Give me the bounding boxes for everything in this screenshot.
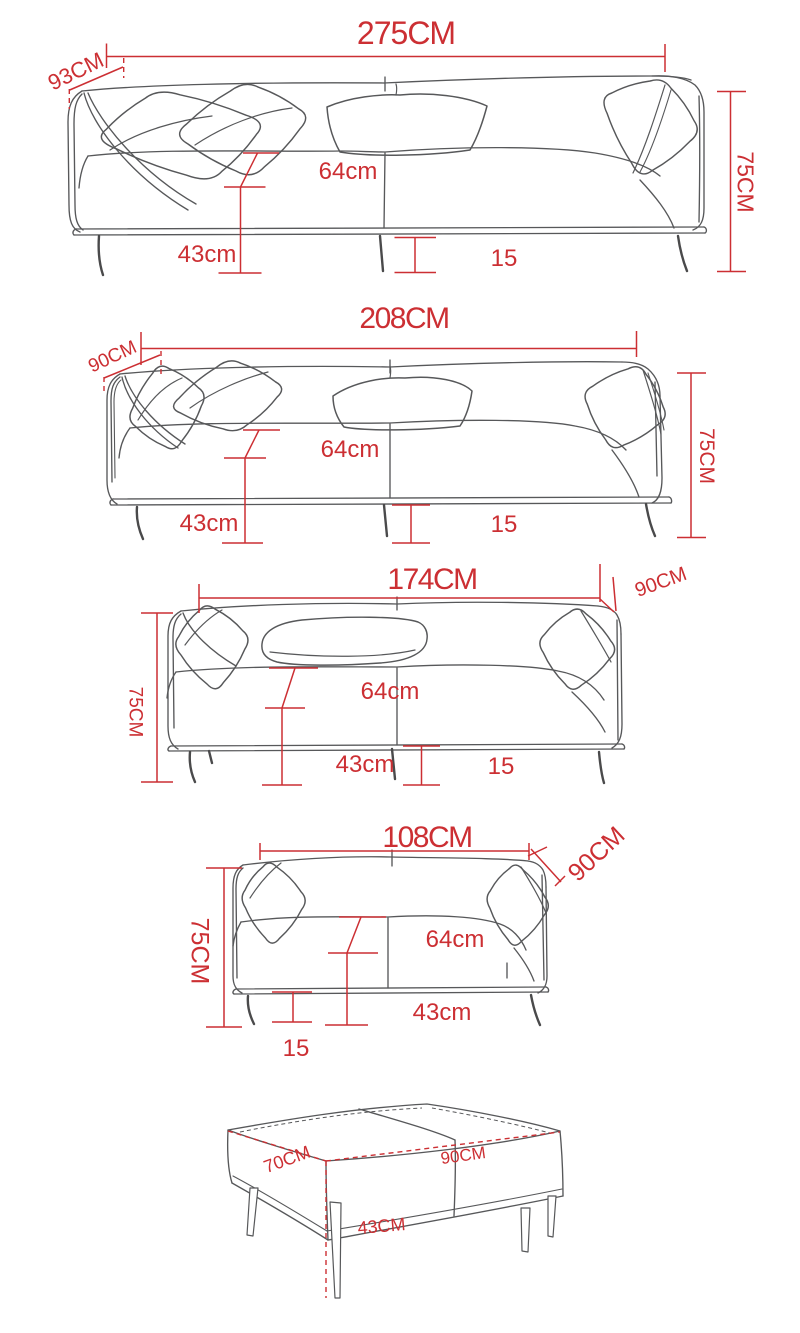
svg-text:43cm: 43cm [178,241,237,268]
svg-text:208CM: 208CM [359,302,448,335]
svg-text:75CM: 75CM [124,687,145,738]
svg-text:64cm: 64cm [321,436,380,463]
svg-text:43CM: 43CM [357,1214,407,1238]
svg-text:64cm: 64cm [361,678,420,705]
svg-text:75CM: 75CM [733,151,759,212]
svg-text:15: 15 [488,753,515,780]
svg-text:75CM: 75CM [186,918,214,985]
svg-text:275CM: 275CM [357,15,455,51]
svg-text:15: 15 [283,1035,310,1062]
svg-text:174CM: 174CM [387,563,476,596]
svg-text:15: 15 [491,245,518,272]
svg-text:43cm: 43cm [180,510,239,537]
svg-text:43cm: 43cm [336,751,395,778]
svg-text:64cm: 64cm [426,926,485,953]
svg-text:75CM: 75CM [695,428,718,484]
svg-text:43cm: 43cm [413,999,472,1026]
svg-text:64cm: 64cm [319,158,378,185]
svg-text:15: 15 [491,511,518,538]
svg-text:108CM: 108CM [382,821,471,854]
